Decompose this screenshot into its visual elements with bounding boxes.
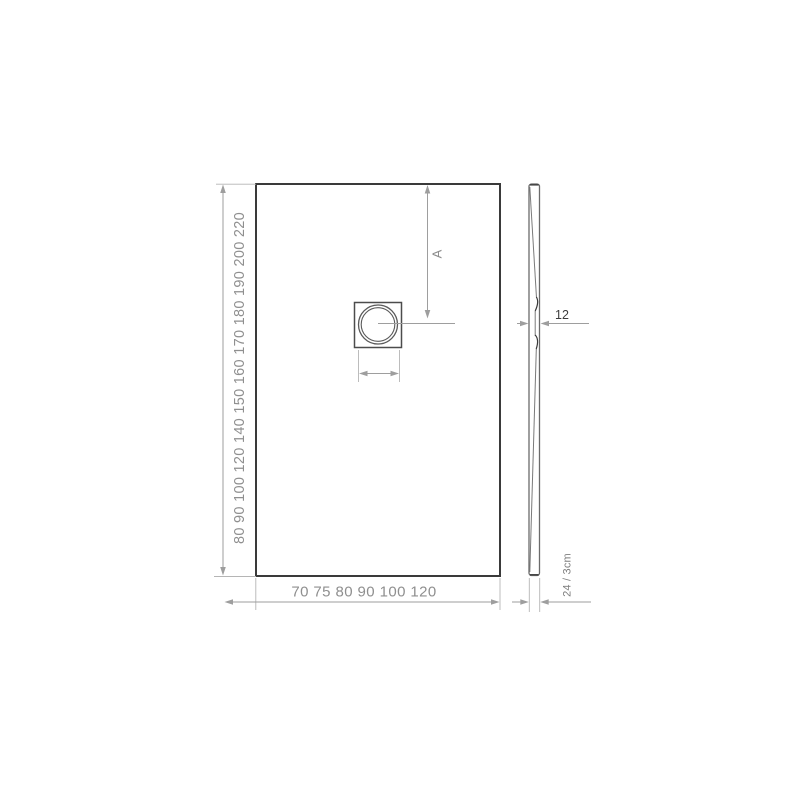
width-scale-labels: 70 75 80 90 100 120 bbox=[291, 585, 436, 600]
edge-arrow-left bbox=[520, 599, 529, 604]
length-arrow-down bbox=[220, 567, 226, 576]
center-thickness-label: 12 bbox=[555, 309, 569, 322]
edge-arrow-right bbox=[540, 599, 549, 604]
thickness12-arrow-right bbox=[541, 321, 550, 326]
thickness12-arrow-left bbox=[520, 321, 529, 326]
shower-tray-technical-drawing: 80 90 100 120 140 150 160 170 180 190 20… bbox=[0, 0, 800, 800]
width-arrow-right bbox=[491, 599, 500, 605]
tray-side-profile-outline bbox=[529, 184, 540, 576]
drain-position-label: A bbox=[431, 250, 444, 259]
length-scale-labels: 80 90 100 120 140 150 160 170 180 190 20… bbox=[233, 212, 248, 544]
edge-thickness-label: 24 / 3cm bbox=[563, 553, 574, 597]
length-arrow-up bbox=[220, 185, 226, 194]
tray-plan-outline bbox=[256, 184, 500, 576]
width-arrow-left bbox=[225, 599, 234, 605]
drawing-linework bbox=[0, 0, 800, 800]
